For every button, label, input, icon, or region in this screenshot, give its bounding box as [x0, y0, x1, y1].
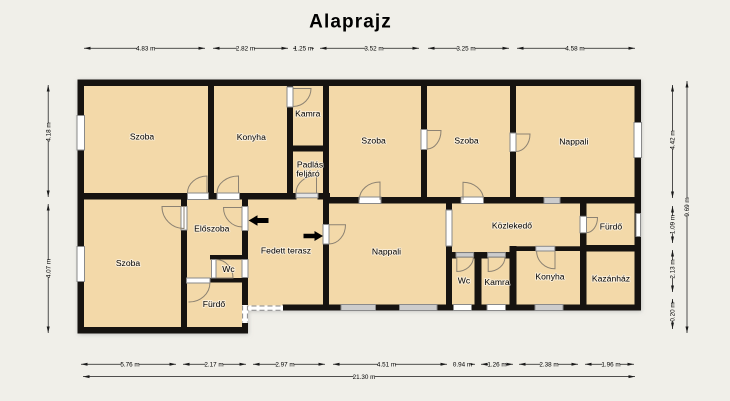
- svg-text:Konyha: Konyha: [535, 272, 564, 282]
- svg-text:4.18 m: 4.18 m: [45, 122, 52, 141]
- svg-text:Szoba: Szoba: [116, 258, 141, 268]
- svg-text:Nappali: Nappali: [559, 136, 588, 146]
- svg-text:Közlekedő: Közlekedő: [492, 220, 532, 230]
- svg-text:Kazánház: Kazánház: [592, 274, 630, 284]
- svg-text:feljáró: feljáró: [296, 169, 320, 179]
- svg-text:4.07 m: 4.07 m: [45, 259, 52, 278]
- svg-text:4.51 m: 4.51 m: [377, 362, 396, 369]
- svg-text:2.17 m: 2.17 m: [204, 362, 223, 369]
- svg-text:0.20 m: 0.20 m: [670, 302, 677, 321]
- svg-text:4.42 m: 4.42 m: [670, 130, 677, 149]
- svg-text:1.26 m: 1.26 m: [487, 362, 506, 369]
- svg-text:2.82 m: 2.82 m: [236, 45, 255, 52]
- svg-text:2.13 m: 2.13 m: [670, 259, 677, 278]
- svg-text:1.96 m: 1.96 m: [601, 362, 620, 369]
- svg-text:Fürdő: Fürdő: [203, 299, 226, 309]
- svg-text:Szoba: Szoba: [454, 136, 479, 146]
- svg-text:Fürdő: Fürdő: [600, 221, 623, 231]
- svg-text:4.58 m: 4.58 m: [565, 45, 584, 52]
- svg-text:Konyha: Konyha: [237, 132, 266, 142]
- svg-text:5.76 m: 5.76 m: [120, 362, 139, 369]
- svg-text:3.25 m: 3.25 m: [456, 45, 475, 52]
- svg-text:Előszoba: Előszoba: [194, 223, 230, 233]
- svg-text:1.09 m: 1.09 m: [670, 215, 677, 234]
- svg-text:2.38 m: 2.38 m: [539, 362, 558, 369]
- svg-text:Nappali: Nappali: [372, 247, 401, 257]
- svg-text:Szoba: Szoba: [361, 136, 386, 146]
- svg-text:3.52 m: 3.52 m: [364, 45, 383, 52]
- svg-text:21.30 m: 21.30 m: [353, 374, 376, 381]
- svg-text:Wc: Wc: [458, 276, 471, 286]
- svg-text:Kamra: Kamra: [295, 109, 321, 119]
- svg-text:2.97 m: 2.97 m: [275, 362, 294, 369]
- svg-text:0.94 m: 0.94 m: [453, 362, 472, 369]
- svg-text:Wc: Wc: [222, 264, 235, 274]
- svg-text:Kamra: Kamra: [484, 277, 510, 287]
- svg-text:1.25 m: 1.25 m: [294, 45, 313, 52]
- svg-text:Alaprajz: Alaprajz: [309, 12, 392, 33]
- svg-text:4.83 m: 4.83 m: [136, 45, 155, 52]
- svg-text:9.69 m: 9.69 m: [684, 197, 691, 216]
- svg-text:Fedett terasz: Fedett terasz: [261, 246, 311, 256]
- svg-text:Szoba: Szoba: [130, 132, 155, 142]
